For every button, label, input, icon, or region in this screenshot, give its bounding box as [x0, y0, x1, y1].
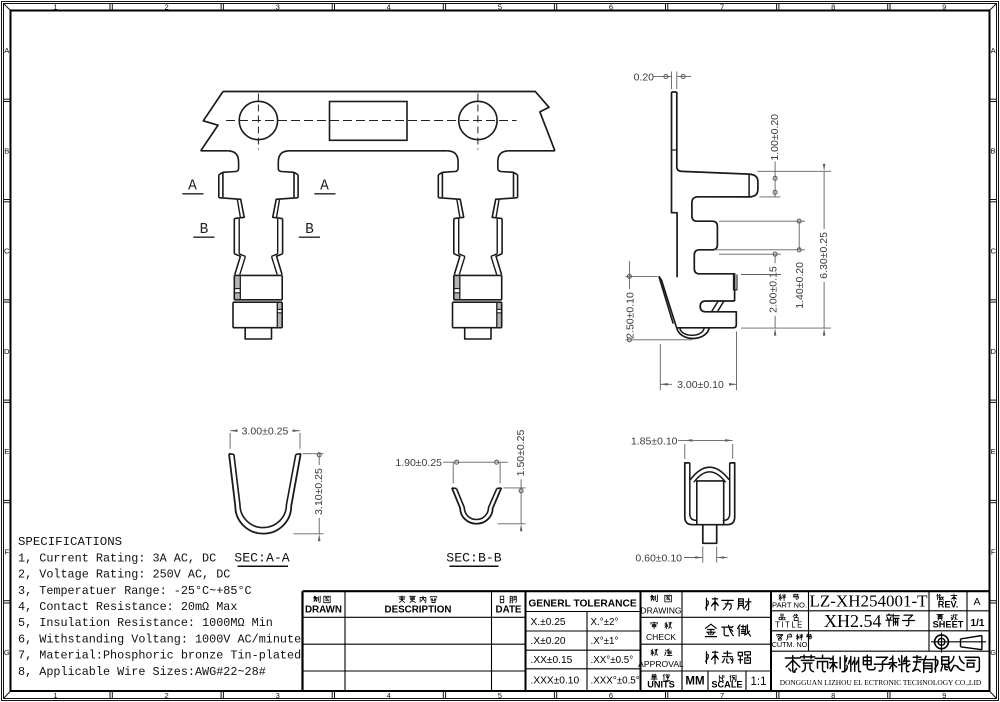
svg-text:GENERL TOLERANCE: GENERL TOLERANCE [528, 598, 637, 609]
svg-text:DONGGUAN LIZHOU EL ECTRONIC TE: DONGGUAN LIZHOU EL ECTRONIC TECHNOLOGY C… [780, 678, 982, 687]
svg-text:C: C [4, 247, 10, 256]
svg-text:.X±0.20: .X±0.20 [531, 636, 566, 647]
svg-text:2.00±0.15: 2.00±0.15 [768, 266, 780, 313]
svg-text:1:1: 1:1 [751, 676, 767, 688]
svg-text:3.00±0.25: 3.00±0.25 [242, 426, 289, 438]
svg-text:1.00±0.20: 1.00±0.20 [769, 114, 781, 161]
svg-text:SEC:B-B: SEC:B-B [446, 550, 501, 565]
svg-text:DRAWING: DRAWING [640, 606, 682, 616]
svg-text:.XX°±0.5°: .XX°±0.5° [591, 655, 634, 666]
svg-text:UNITS: UNITS [647, 680, 675, 690]
svg-text:D: D [990, 347, 996, 356]
svg-text:3: 3 [276, 2, 280, 11]
svg-text:8: 8 [831, 2, 835, 11]
svg-text:F: F [4, 548, 9, 557]
svg-text:APPROVAL: APPROVAL [638, 659, 684, 669]
svg-text:8, Applicable Wire Sizes:AWG#2: 8, Applicable Wire Sizes:AWG#22~28# [18, 665, 266, 679]
svg-text:MM: MM [685, 676, 704, 688]
svg-text:B: B [991, 146, 996, 155]
svg-text:2: 2 [164, 2, 168, 11]
svg-text:2.50±0.10: 2.50±0.10 [625, 292, 637, 339]
svg-text:LZ-XH254001-T: LZ-XH254001-T [809, 592, 928, 611]
svg-text:DRAWN: DRAWN [305, 605, 342, 616]
svg-text:1/1: 1/1 [971, 618, 985, 629]
svg-text:6: 6 [609, 691, 613, 700]
svg-text:3, Temperatuer Range: -25°C~+8: 3, Temperatuer Range: -25°C~+85°C [18, 584, 252, 598]
svg-text:7: 7 [720, 2, 724, 11]
svg-text:X.°±2°: X.°±2° [591, 617, 619, 628]
svg-text:6: 6 [609, 2, 613, 11]
svg-text:6.30±0.25: 6.30±0.25 [818, 232, 830, 279]
svg-text:G: G [4, 648, 10, 657]
svg-text:4, Contact Resistance: 20mΩ Ma: 4, Contact Resistance: 20mΩ Max [18, 600, 237, 614]
svg-text:SEC:A-A: SEC:A-A [234, 550, 289, 565]
svg-text:7: 7 [720, 691, 724, 700]
svg-text:B: B [305, 222, 314, 238]
svg-text:3.10±0.25: 3.10±0.25 [313, 468, 325, 515]
svg-text:.XXX°±0.5°: .XXX°±0.5° [591, 676, 640, 687]
svg-text:XH2.54: XH2.54 [824, 611, 882, 631]
svg-text:8: 8 [831, 691, 835, 700]
svg-text:1.50±0.25: 1.50±0.25 [515, 430, 527, 477]
svg-text:SCALE: SCALE [711, 680, 742, 690]
svg-text:0.20: 0.20 [634, 72, 655, 84]
svg-text:1: 1 [53, 691, 57, 700]
svg-text:E: E [4, 447, 9, 456]
svg-text:5: 5 [498, 2, 502, 11]
svg-text:.XX±0.15: .XX±0.15 [531, 655, 573, 666]
svg-text:A: A [188, 178, 197, 194]
svg-text:X.±0.25: X.±0.25 [531, 617, 566, 628]
svg-text:E: E [991, 447, 996, 456]
svg-text:1.85±0.10: 1.85±0.10 [631, 435, 678, 447]
svg-text:CUTM. NO.: CUTM. NO. [772, 640, 810, 649]
svg-text:F: F [991, 548, 996, 557]
svg-text:4: 4 [387, 691, 391, 700]
svg-text:B: B [200, 222, 209, 238]
svg-text:1.40±0.20: 1.40±0.20 [794, 262, 806, 309]
svg-text:3.00±0.10: 3.00±0.10 [677, 379, 724, 391]
svg-text:2: 2 [164, 691, 168, 700]
svg-text:.XXX±0.10: .XXX±0.10 [531, 676, 580, 687]
svg-text:G: G [990, 648, 996, 657]
svg-text:D: D [4, 347, 10, 356]
svg-text:9: 9 [942, 691, 946, 700]
svg-text:.X°±1°: .X°±1° [591, 636, 619, 647]
svg-text:3: 3 [276, 691, 280, 700]
svg-text:1.90±0.25: 1.90±0.25 [395, 457, 442, 469]
svg-text:2, Voltage Rating: 250V AC, DC: 2, Voltage Rating: 250V AC, DC [18, 568, 230, 582]
svg-text:9: 9 [942, 2, 946, 11]
svg-text:TITLE: TITLE [775, 621, 804, 630]
svg-text:SHEET: SHEET [933, 620, 964, 630]
svg-text:6, Withstanding Voltang: 1000V: 6, Withstanding Voltang: 1000V AC/minute [18, 632, 301, 646]
svg-text:A: A [973, 596, 980, 608]
svg-text:0.60±0.10: 0.60±0.10 [635, 552, 682, 564]
svg-text:REV.: REV. [938, 600, 959, 610]
svg-text:1, Current Rating: 3A AC, DC: 1, Current Rating: 3A AC, DC [18, 551, 216, 565]
svg-text:A: A [320, 178, 329, 194]
svg-text:5, Insulation Resistance: 1000: 5, Insulation Resistance: 1000MΩ Min [18, 616, 273, 630]
svg-text:DESCRIPTION: DESCRIPTION [385, 605, 452, 616]
svg-text:1: 1 [53, 2, 57, 11]
svg-text:5: 5 [498, 691, 502, 700]
svg-text:DATE: DATE [496, 605, 522, 616]
svg-text:CHECK: CHECK [646, 632, 676, 642]
svg-text:C: C [990, 247, 996, 256]
svg-text:SPECIFICATIONS: SPECIFICATIONS [18, 535, 122, 549]
svg-text:PART NO.: PART NO. [772, 601, 807, 610]
svg-text:B: B [4, 146, 9, 155]
svg-text:7, Material:Phosphoric bronze: 7, Material:Phosphoric bronze Tin-plated [18, 649, 301, 663]
svg-text:4: 4 [387, 2, 391, 11]
